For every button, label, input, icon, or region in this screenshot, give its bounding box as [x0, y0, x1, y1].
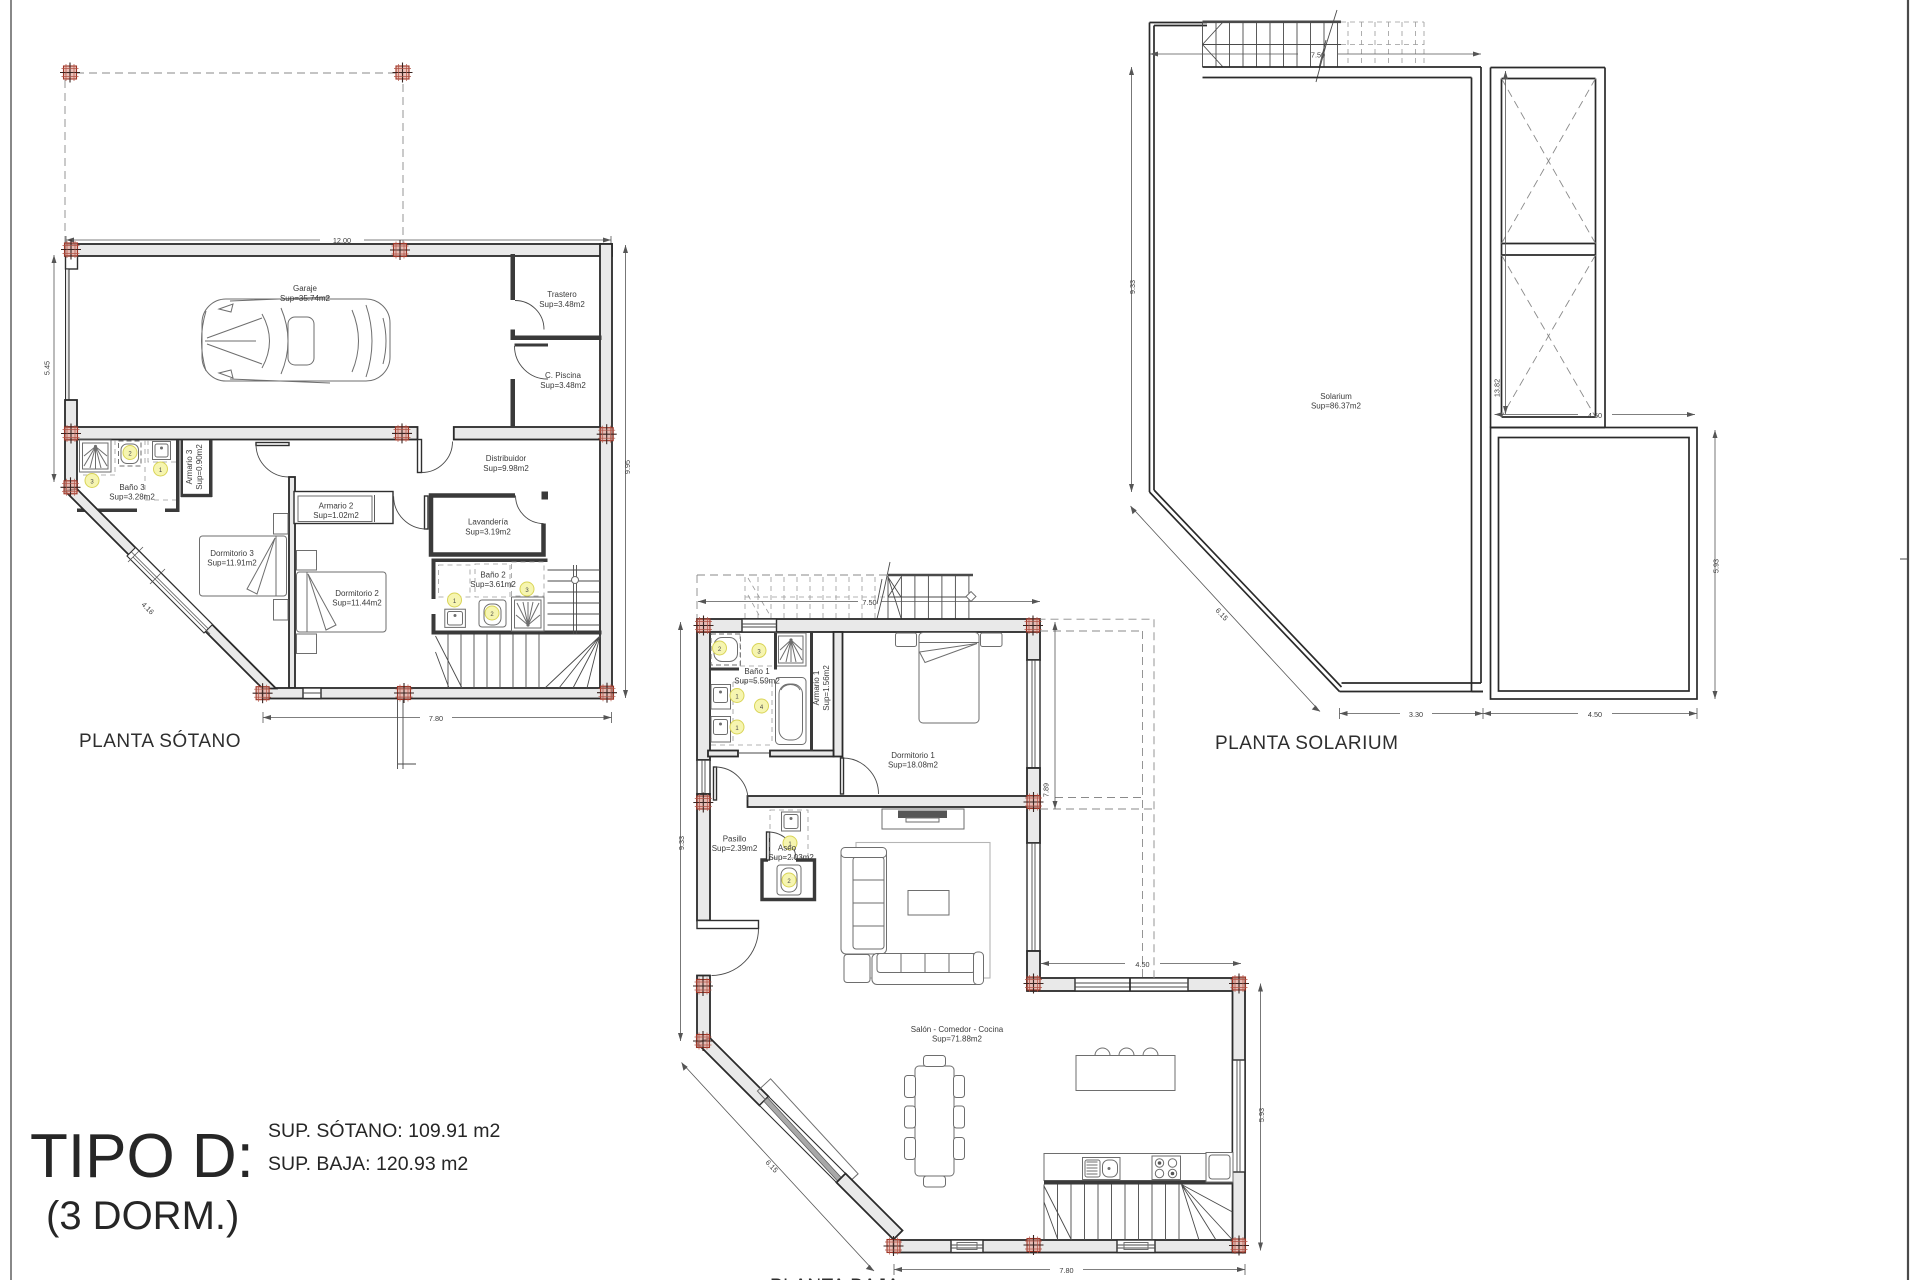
svg-text:Baño 3: Baño 3 — [119, 483, 145, 492]
svg-text:Distribuidor: Distribuidor — [486, 454, 527, 463]
svg-text:Sup=1.02m2: Sup=1.02m2 — [313, 511, 359, 520]
svg-text:Sup=2.39m2: Sup=2.39m2 — [712, 844, 758, 853]
svg-text:Sup=9.98m2: Sup=9.98m2 — [483, 464, 529, 473]
svg-text:Lavandería: Lavandería — [468, 518, 509, 527]
svg-text:7.50: 7.50 — [1311, 51, 1325, 60]
svg-text:Baño 2: Baño 2 — [480, 571, 506, 580]
svg-text:3.30: 3.30 — [1409, 710, 1423, 719]
svg-text:5.45: 5.45 — [43, 361, 52, 375]
svg-text:SUP. BAJA: 120.93 m2: SUP. BAJA: 120.93 m2 — [268, 1153, 468, 1175]
svg-text:Solarium: Solarium — [1320, 392, 1352, 401]
svg-text:Sup=86.37m2: Sup=86.37m2 — [1311, 402, 1362, 411]
svg-text:Aseo: Aseo — [778, 844, 797, 853]
svg-text:C. Piscina: C. Piscina — [545, 371, 582, 380]
svg-text:5.93: 5.93 — [1257, 1108, 1266, 1122]
svg-text:4.50: 4.50 — [1588, 710, 1602, 719]
svg-text:Sup=3.48m2: Sup=3.48m2 — [540, 381, 586, 390]
svg-text:Sup=1.56m2: Sup=1.56m2 — [822, 665, 831, 711]
svg-text:Pasillo: Pasillo — [723, 835, 747, 844]
svg-text:7.50: 7.50 — [862, 598, 876, 607]
svg-text:Dormitorio 1: Dormitorio 1 — [891, 751, 935, 760]
svg-text:Sup=2.03m2: Sup=2.03m2 — [768, 853, 814, 862]
svg-text:Sup=11.91m2: Sup=11.91m2 — [207, 559, 257, 568]
svg-text:(3 DORM.): (3 DORM.) — [46, 1194, 239, 1238]
svg-text:Sup=3.19m2: Sup=3.19m2 — [465, 528, 511, 537]
svg-text:7.89: 7.89 — [1042, 783, 1051, 797]
svg-text:Armario 3: Armario 3 — [185, 449, 194, 484]
svg-text:Sup=11.44m2: Sup=11.44m2 — [332, 599, 382, 608]
svg-text:Sup=71.88m2: Sup=71.88m2 — [932, 1035, 983, 1044]
svg-text:Sup=3.61m2: Sup=3.61m2 — [470, 580, 516, 589]
svg-text:4.50: 4.50 — [1135, 960, 1149, 969]
svg-text:PLANTA SÓTANO: PLANTA SÓTANO — [79, 730, 241, 752]
svg-text:13.82: 13.82 — [1493, 379, 1502, 397]
svg-text:5.93: 5.93 — [1712, 559, 1721, 573]
svg-text:Trastero: Trastero — [547, 290, 577, 299]
svg-text:4.50: 4.50 — [1588, 411, 1602, 420]
svg-text:Sup=35.74m2: Sup=35.74m2 — [280, 294, 331, 303]
svg-text:9.95: 9.95 — [623, 460, 632, 474]
svg-text:9.33: 9.33 — [1128, 280, 1137, 294]
svg-text:Salón - Comedor - Cocina: Salón - Comedor - Cocina — [911, 1025, 1004, 1034]
svg-text:Sup=18.08m2: Sup=18.08m2 — [888, 761, 939, 770]
svg-text:PLANTA BAJA: PLANTA BAJA — [770, 1276, 900, 1280]
svg-text:7.80: 7.80 — [429, 714, 443, 723]
svg-text:9.33: 9.33 — [677, 836, 686, 850]
svg-text:Armario 1: Armario 1 — [812, 670, 821, 705]
svg-text:Garaje: Garaje — [293, 284, 318, 293]
svg-text:Sup=3.28m2: Sup=3.28m2 — [109, 493, 155, 502]
svg-text:Baño 1: Baño 1 — [744, 667, 770, 676]
svg-text:Dormitorio 3: Dormitorio 3 — [210, 549, 254, 558]
svg-text:SUP. SÓTANO: 109.91 m2: SUP. SÓTANO: 109.91 m2 — [268, 1119, 500, 1142]
svg-text:TIPO D:: TIPO D: — [30, 1122, 254, 1191]
svg-text:Sup=3.48m2: Sup=3.48m2 — [539, 300, 585, 309]
svg-text:PLANTA SOLARIUM: PLANTA SOLARIUM — [1215, 733, 1398, 754]
svg-text:Armario 2: Armario 2 — [319, 502, 354, 511]
svg-text:7.80: 7.80 — [1059, 1266, 1073, 1275]
svg-text:Sup=0.90m2: Sup=0.90m2 — [195, 444, 204, 490]
svg-text:Dormitorio 2: Dormitorio 2 — [335, 589, 379, 598]
svg-text:Sup=5.59m2: Sup=5.59m2 — [734, 677, 780, 686]
